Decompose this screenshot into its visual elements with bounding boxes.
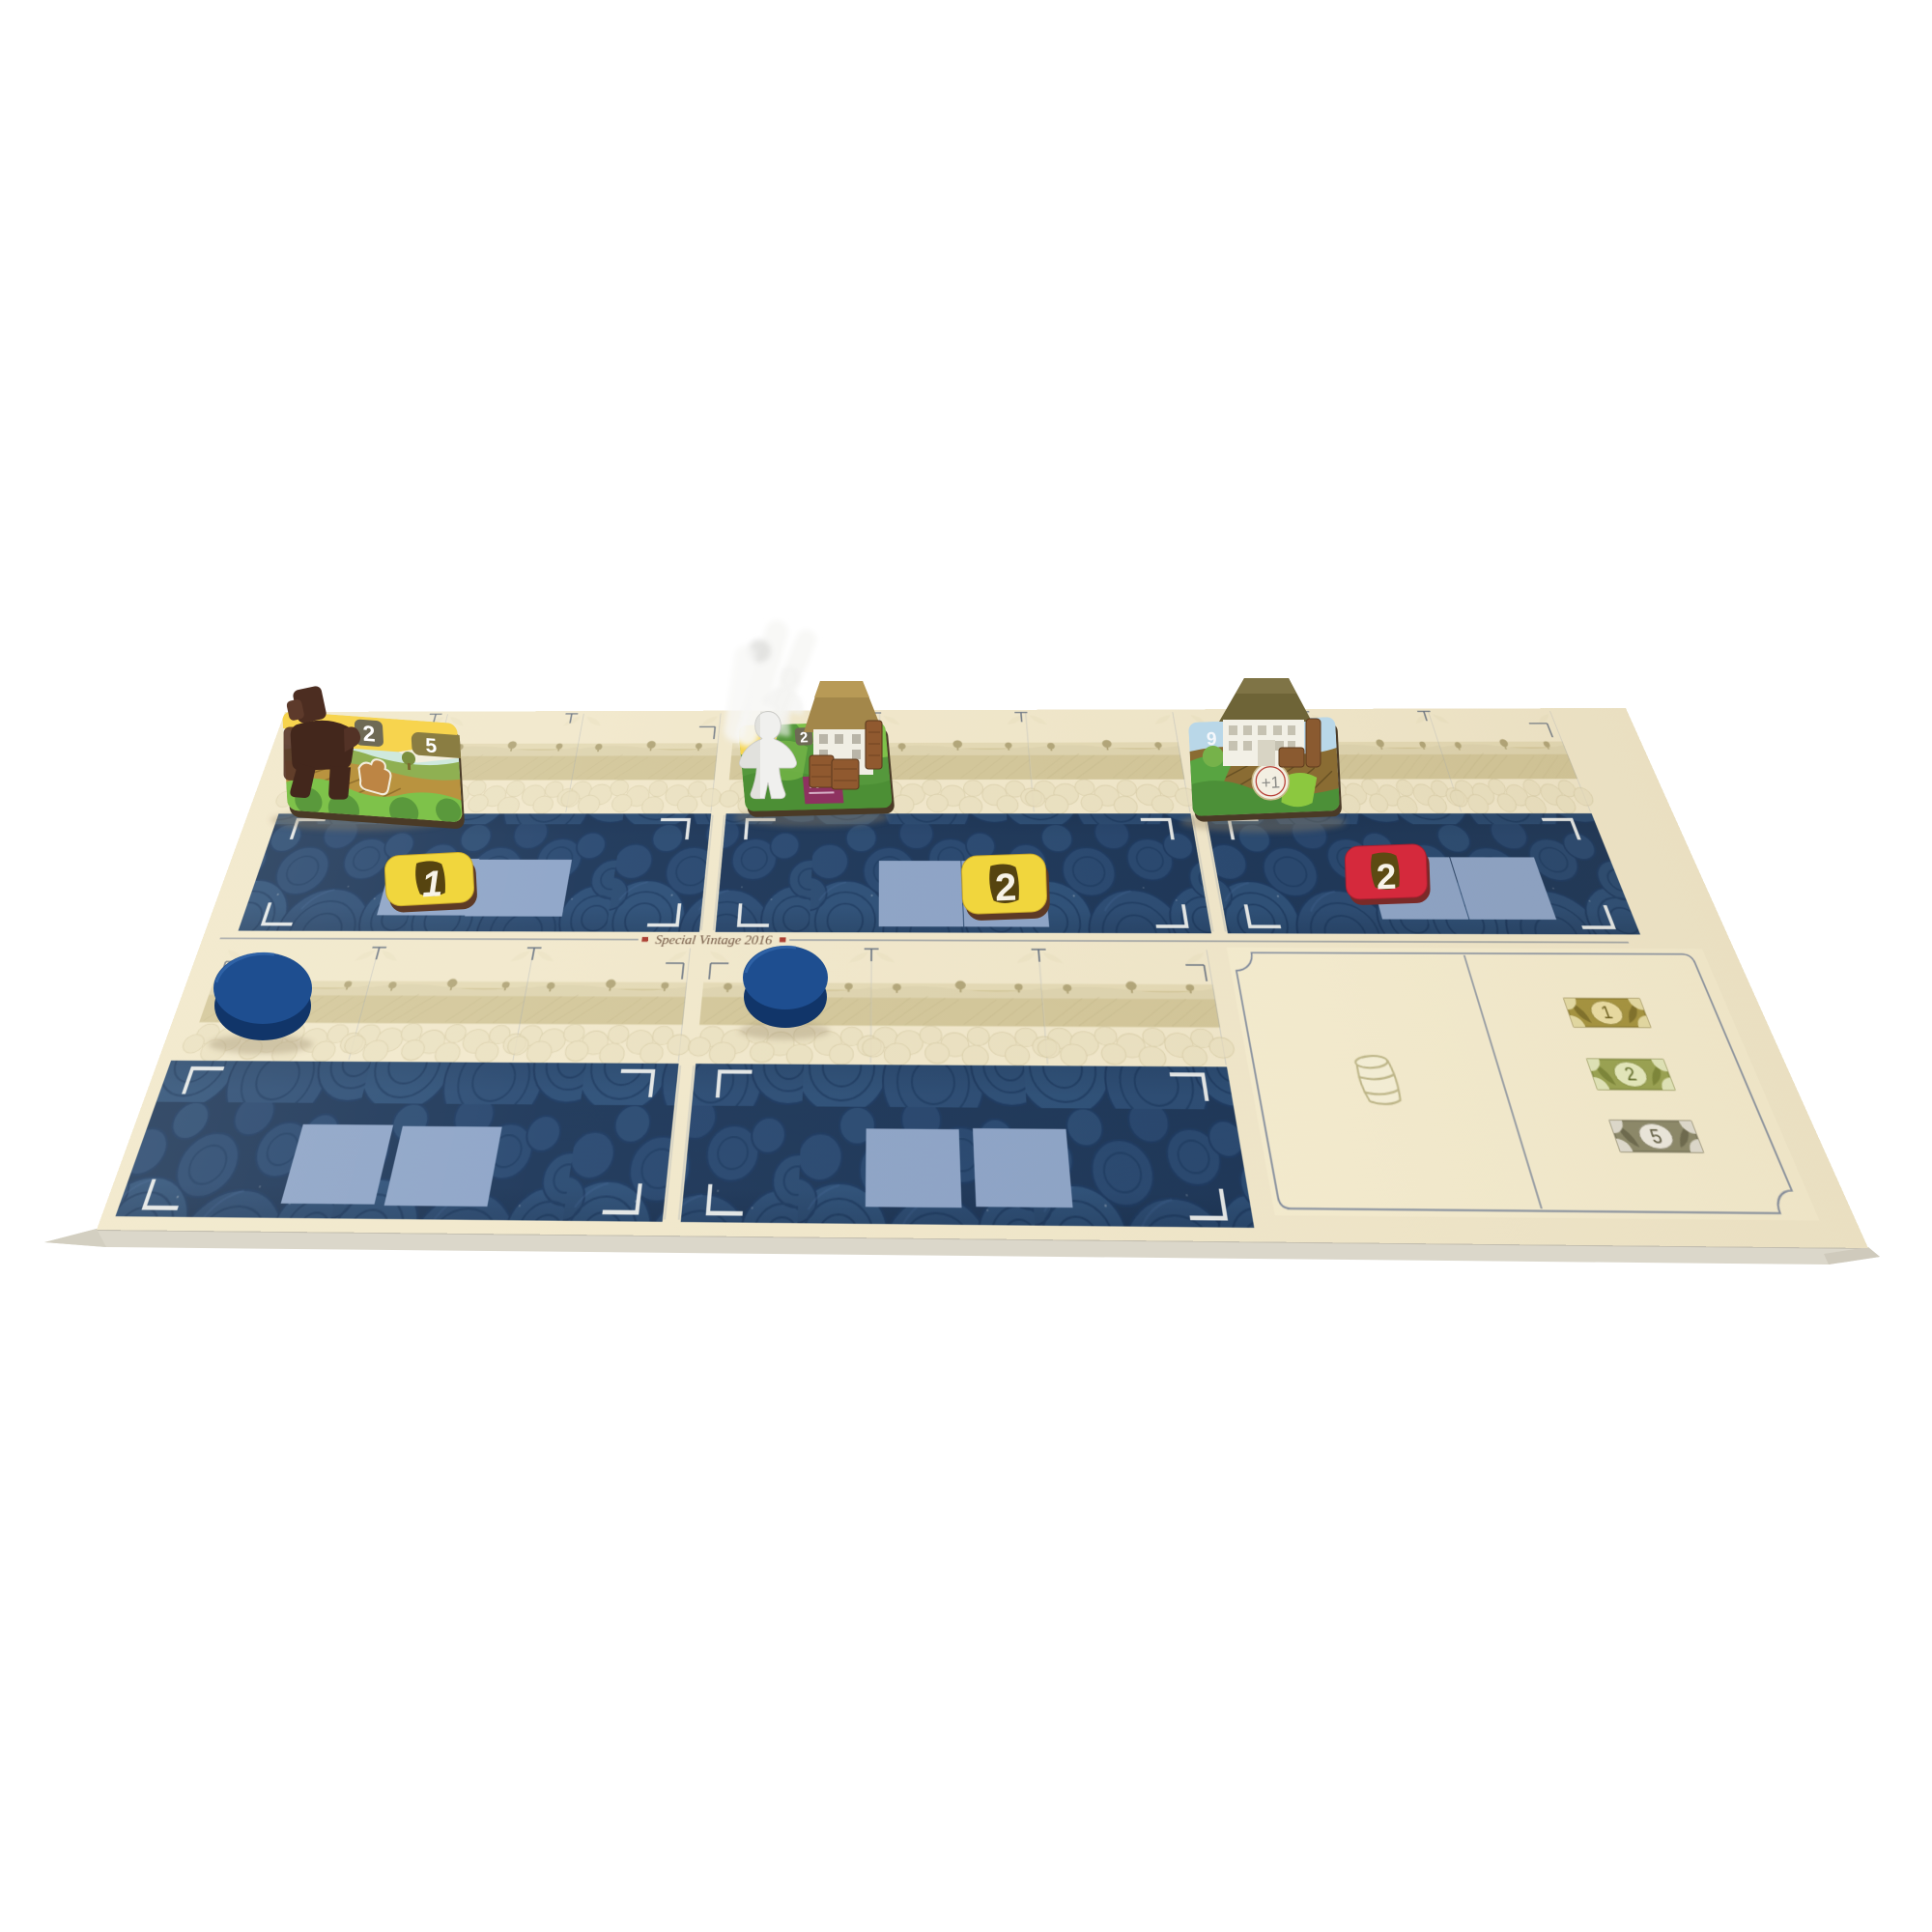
svg-text:1: 1: [421, 864, 443, 905]
svg-text:2: 2: [362, 721, 376, 747]
svg-text:5: 5: [425, 735, 438, 758]
svg-text:2: 2: [1376, 857, 1397, 897]
svg-text:+1: +1: [1261, 773, 1280, 792]
svg-text:9: 9: [1206, 729, 1217, 750]
svg-text:2: 2: [994, 867, 1017, 910]
